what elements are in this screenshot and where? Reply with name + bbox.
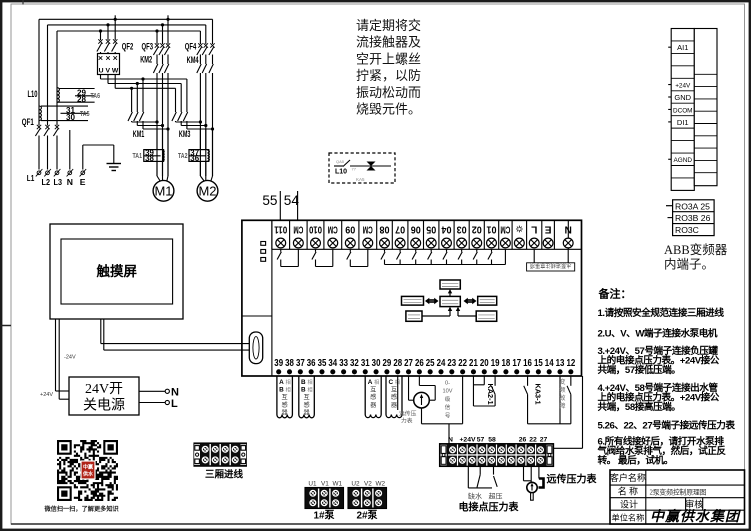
svg-text:E: E [80,177,86,187]
svg-text:拧紧，以防: 拧紧，以防 [356,68,421,83]
svg-text:58: 58 [488,437,496,444]
svg-text:设计: 设计 [620,499,638,510]
svg-text:客户名称: 客户名称 [610,472,646,483]
svg-text:38: 38 [285,358,294,369]
svg-text:障: 障 [559,402,565,410]
svg-text:转。 最后，试机。: 转。 最后，试机。 [598,455,673,467]
svg-text:L10: L10 [335,169,347,176]
svg-text:互: 互 [391,387,397,394]
svg-text:备注：: 备注： [598,287,632,301]
svg-text:KA5: KA5 [356,177,365,182]
svg-text:KM4: KM4 [187,55,200,65]
svg-text:互: 互 [303,394,309,401]
svg-text:TA5: TA5 [80,109,90,118]
svg-text:07: 07 [395,223,405,234]
svg-text:W1: W1 [333,481,343,488]
svg-text:KM3: KM3 [179,129,191,139]
svg-text:共端，58接高压端。: 共端，58接高压端。 [598,401,681,413]
svg-text:内端子。: 内端子。 [664,258,714,272]
svg-text:77: 77 [352,167,357,172]
svg-text:KA2-1: KA2-1 [486,384,495,405]
svg-text:22: 22 [529,437,537,444]
svg-text:32: 32 [350,358,359,369]
svg-text:相: 相 [374,378,379,386]
svg-text:28: 28 [393,358,402,369]
svg-text:L2: L2 [42,177,51,187]
svg-text:06: 06 [410,223,420,234]
svg-text:互: 互 [282,394,288,401]
svg-text:35: 35 [318,358,327,369]
svg-text:QF4: QF4 [185,41,197,51]
svg-text:09: 09 [345,223,355,234]
svg-text:03: 03 [456,223,466,234]
svg-text:信: 信 [445,403,451,411]
svg-text:RO3C: RO3C [675,225,699,235]
svg-text:23: 23 [447,358,456,369]
svg-text:TA2: TA2 [178,151,188,160]
svg-text:27: 27 [404,358,413,369]
svg-text:共端，57接低压端。: 共端，57接低压端。 [598,364,681,376]
svg-text:QF3: QF3 [142,41,154,51]
svg-text:CM: CM [363,223,373,234]
svg-text:26: 26 [519,437,527,444]
svg-text:远传压: 远传压 [399,410,417,418]
svg-text:远传压力表: 远传压力表 [547,473,598,486]
svg-text:请定期将交: 请定期将交 [356,18,421,33]
svg-text:16: 16 [523,358,532,369]
svg-text:22: 22 [458,358,467,369]
svg-text:27: 27 [540,437,548,444]
svg-text:QF2: QF2 [122,41,134,51]
svg-text:电接点压力表: 电接点压力表 [459,501,520,514]
svg-text:CM: CM [500,223,510,234]
svg-text:缺水: 缺水 [468,492,482,501]
svg-text:变: 变 [559,378,565,386]
svg-text:级: 级 [445,395,451,403]
svg-text:25: 25 [426,358,435,369]
svg-text:14: 14 [545,358,554,369]
svg-text:号: 号 [445,412,451,419]
svg-text:36: 36 [307,358,316,369]
svg-text:V1: V1 [321,481,329,488]
svg-text:2.U、V、W端子连接水泵电机: 2.U、V、W端子连接水泵电机 [598,328,718,340]
svg-text:相: 相 [307,386,312,394]
svg-text:E: E [544,223,551,234]
svg-text:011: 011 [274,223,287,234]
svg-text:30: 30 [66,112,75,122]
svg-text:12: 12 [566,358,575,369]
svg-text:AGND: AGND [674,157,693,164]
svg-text:N: N [448,437,453,444]
svg-text:02: 02 [471,223,481,234]
svg-text:感: 感 [391,393,397,401]
svg-text:19: 19 [491,358,500,369]
svg-text:TA6: TA6 [91,91,101,100]
svg-text:器: 器 [303,409,310,416]
svg-text:33: 33 [339,358,348,369]
svg-text:W2: W2 [376,481,386,488]
svg-text:KM2: KM2 [140,55,152,65]
svg-text:TA1: TA1 [133,151,143,160]
svg-text:DCOM: DCOM [673,107,693,114]
svg-text:故: 故 [559,394,565,402]
svg-text:RO3A 25: RO3A 25 [675,201,710,211]
svg-text:器: 器 [391,402,398,409]
svg-text:37: 37 [296,358,305,369]
svg-text:24: 24 [437,358,446,369]
svg-text:CM: CM [293,223,303,234]
svg-text:5.26、22、27号端子接远传压力表: 5.26、22、27号端子接远传压力表 [598,420,736,432]
svg-text:2#泵: 2#泵 [356,510,378,522]
svg-text:57: 57 [477,437,485,444]
svg-text:1#泵: 1#泵 [313,510,335,522]
svg-text:28: 28 [77,94,86,104]
svg-text:互: 互 [370,387,376,394]
svg-text:单位名称: 单位名称 [612,513,645,523]
svg-text:30: 30 [372,358,381,369]
svg-text:2泵变频控制原理图: 2泵变频控制原理图 [650,487,707,496]
svg-text:55: 55 [262,193,277,208]
svg-text:N: N [67,177,73,187]
svg-text:水泵进线注意事项: 水泵进线注意事项 [530,262,572,270]
svg-text:相: 相 [285,378,290,386]
svg-text:M2: M2 [198,184,216,199]
svg-text:L: L [171,398,178,410]
svg-text:C: C [388,379,393,386]
svg-text:KM1: KM1 [133,129,145,139]
svg-text:010: 010 [309,223,322,234]
svg-text:29: 29 [383,358,392,369]
svg-text:17: 17 [512,358,521,369]
svg-text:U2: U2 [351,481,360,488]
svg-text:QF1: QF1 [22,117,34,127]
svg-text:21: 21 [469,358,478,369]
svg-text:V2: V2 [364,481,372,488]
svg-text:名 称: 名 称 [618,486,638,497]
svg-text:相: 相 [285,386,290,394]
svg-text:U V W: U V W [99,68,119,75]
svg-text:器: 器 [282,409,289,416]
svg-text:U1: U1 [308,481,317,488]
svg-text:中赢: 中赢 [83,464,93,471]
svg-text:A: A [368,379,373,386]
svg-text:26: 26 [415,358,424,369]
svg-text:关电源: 关电源 [83,398,125,414]
svg-text:KA3-1: KA3-1 [534,384,543,405]
svg-text:B: B [279,387,284,394]
svg-text:RO3B 26: RO3B 26 [675,213,711,223]
svg-text:微信扫一扫，了解更多知识: 微信扫一扫，了解更多知识 [44,505,119,513]
svg-text:相: 相 [307,378,312,386]
svg-text:-24V: -24V [64,355,76,361]
svg-text:13: 13 [556,358,565,369]
svg-text:0-: 0- [445,381,450,387]
svg-text:B: B [301,379,306,386]
svg-text:AI1: AI1 [677,43,688,52]
svg-text:24V开: 24V开 [85,382,123,397]
svg-text:1.请按照安全规范连接三厢进线: 1.请按照安全规范连接三厢进线 [598,307,725,319]
svg-text:34: 34 [328,358,337,369]
svg-text:器: 器 [370,402,377,409]
svg-text:N: N [171,387,179,399]
svg-text:01: 01 [486,223,496,234]
svg-text:频: 频 [559,386,565,394]
svg-text:05: 05 [426,223,436,234]
svg-text:18: 18 [502,358,511,369]
svg-text:ABB变频器: ABB变频器 [664,242,728,257]
svg-text:L1: L1 [27,173,35,183]
svg-text:B: B [301,387,306,394]
svg-text:感: 感 [282,401,288,409]
svg-text:+24V: +24V [459,437,476,444]
svg-text:烧毁元件。: 烧毁元件。 [356,102,421,117]
svg-text:M1: M1 [154,184,172,199]
svg-text:CM: CM [328,223,338,234]
svg-text:力表: 力表 [401,417,413,425]
svg-text:中赢供水集团: 中赢供水集团 [650,508,741,525]
svg-text:31: 31 [361,358,370,369]
svg-text:+24V: +24V [675,82,691,89]
svg-text:L: L [531,223,537,234]
svg-text:10V: 10V [443,389,453,395]
svg-text:+24V: +24V [40,392,53,398]
svg-text:感: 感 [303,401,309,409]
svg-text:A: A [279,379,284,386]
svg-text:N: N [565,223,572,234]
svg-text:38: 38 [145,153,154,163]
svg-text:54: 54 [284,193,300,208]
svg-text:触摸屏: 触摸屏 [97,263,138,279]
svg-text:审核: 审核 [685,499,703,510]
svg-text:QA5: QA5 [336,159,345,164]
svg-text:36: 36 [190,153,199,163]
svg-text:空开上螺丝: 空开上螺丝 [356,51,421,66]
svg-text:三厢进线: 三厢进线 [205,469,244,481]
svg-text:振动松动而: 振动松动而 [356,85,421,100]
svg-text:L3: L3 [54,177,63,187]
svg-text:L10: L10 [28,89,38,99]
svg-text:04: 04 [441,223,451,234]
svg-text:08: 08 [379,223,389,234]
svg-text:感: 感 [370,393,376,401]
svg-text:15: 15 [534,358,543,369]
svg-text:流接触器及: 流接触器及 [356,35,421,50]
svg-text:GND: GND [674,93,691,102]
svg-text:20: 20 [480,358,489,369]
svg-text:供水: 供水 [82,471,94,478]
svg-text:超压: 超压 [489,492,503,501]
svg-text:DI1: DI1 [677,118,689,127]
svg-text:39: 39 [274,358,283,369]
